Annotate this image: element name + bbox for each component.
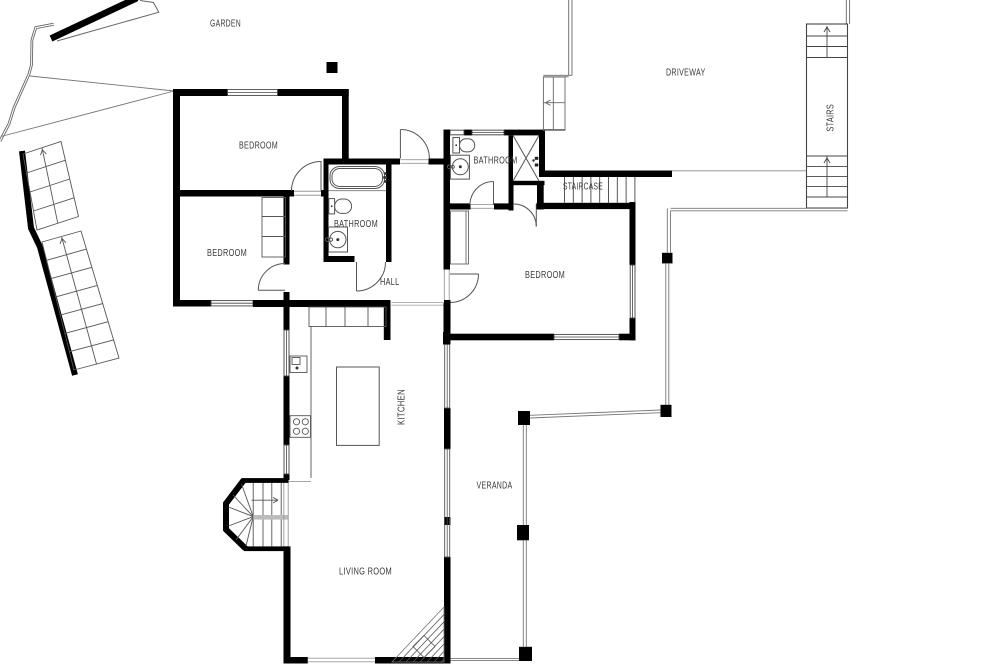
svg-text:BEDROOM: BEDROOM <box>239 141 278 152</box>
svg-text:LIVING ROOM: LIVING ROOM <box>339 567 392 578</box>
svg-text:BEDROOM: BEDROOM <box>207 248 247 259</box>
svg-text:BATHROOM: BATHROOM <box>474 155 518 166</box>
svg-text:STAIRCASE: STAIRCASE <box>563 182 603 193</box>
svg-text:GARDEN: GARDEN <box>210 19 241 30</box>
svg-text:DRIVEWAY: DRIVEWAY <box>666 67 706 78</box>
svg-text:STAIRS: STAIRS <box>826 104 837 132</box>
svg-text:KITCHEN: KITCHEN <box>397 389 408 425</box>
svg-text:VERANDA: VERANDA <box>477 481 513 492</box>
svg-text:BEDROOM: BEDROOM <box>525 270 565 281</box>
svg-text:HALL: HALL <box>380 277 400 288</box>
svg-text:BATHROOM: BATHROOM <box>334 219 378 230</box>
